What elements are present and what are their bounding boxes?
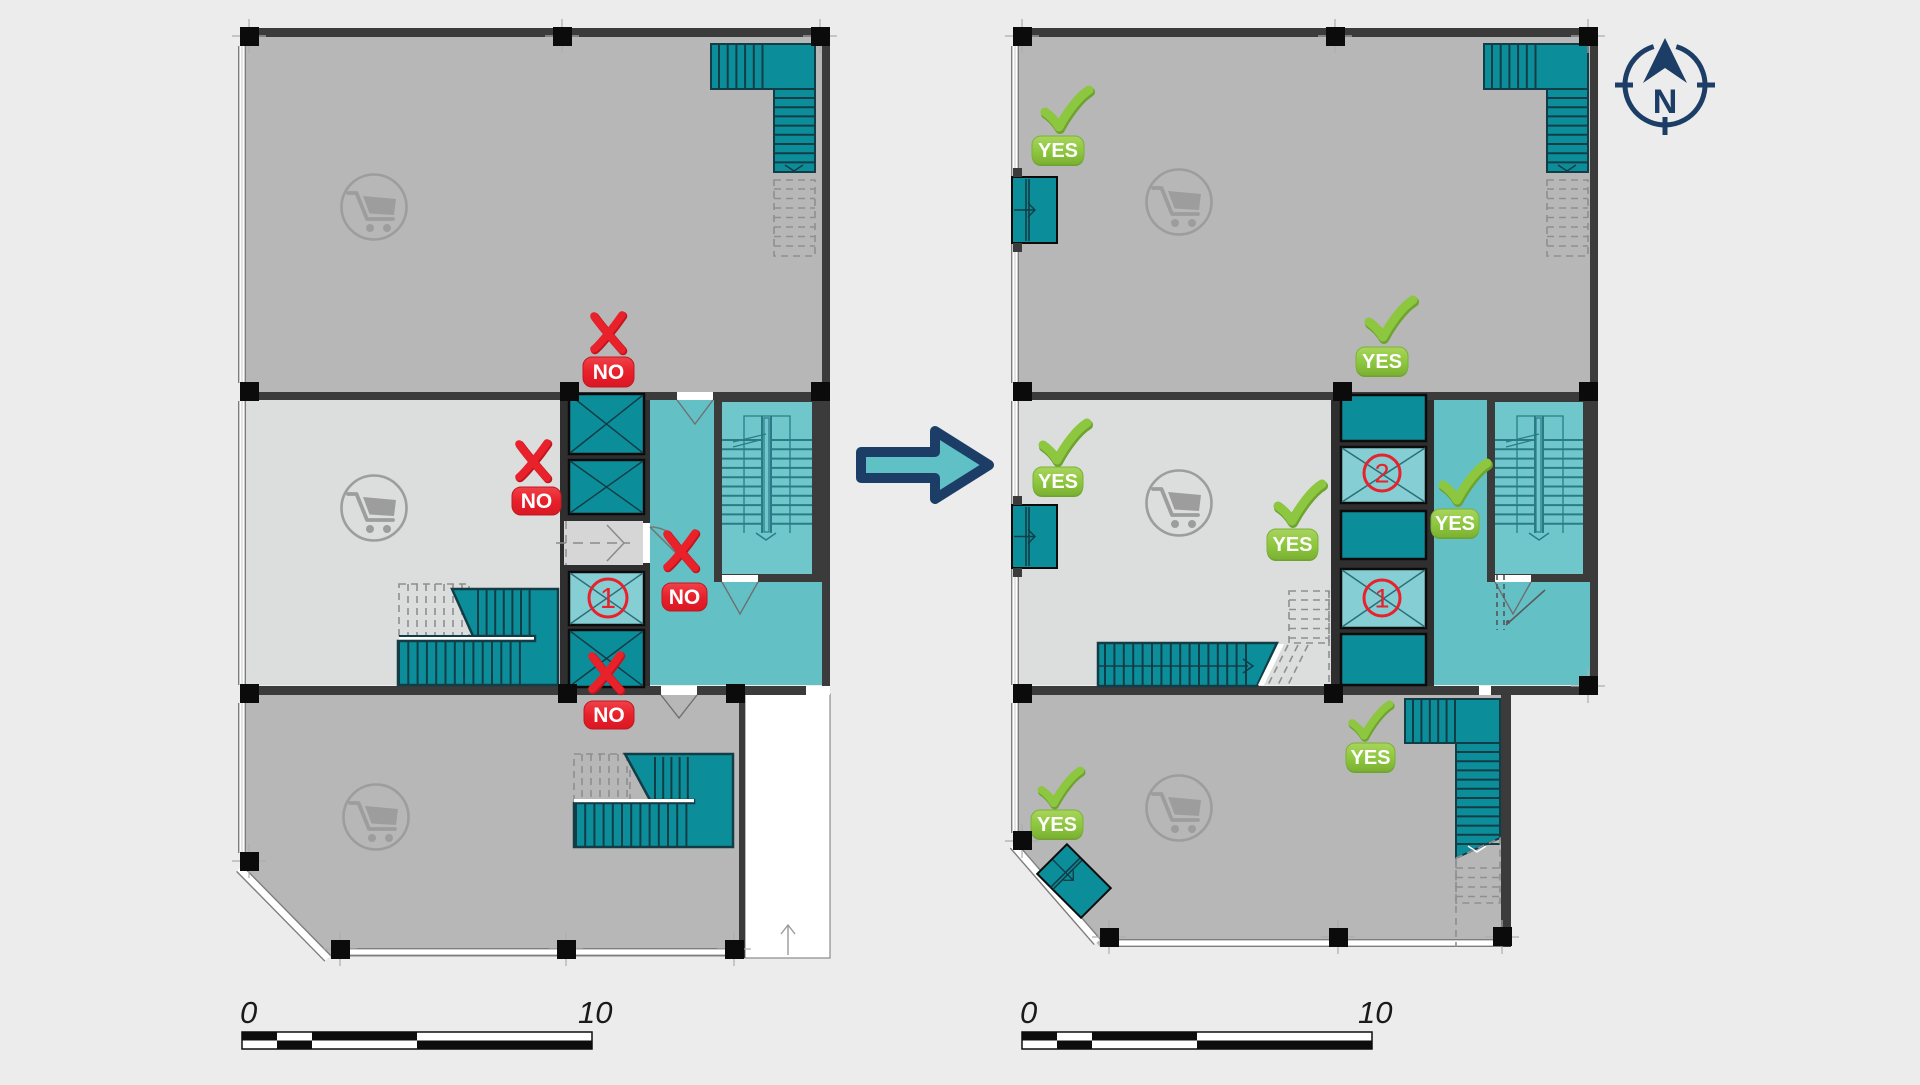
svg-text:1: 1 [1374, 583, 1389, 613]
svg-text:YES: YES [1435, 513, 1475, 535]
svg-text:0: 0 [240, 995, 257, 1030]
svg-text:10: 10 [1358, 995, 1392, 1030]
svg-text:NO: NO [521, 490, 553, 513]
svg-text:YES: YES [1038, 471, 1078, 493]
svg-text:1: 1 [600, 583, 616, 615]
svg-text:YES: YES [1272, 534, 1312, 556]
svg-text:NO: NO [669, 586, 701, 609]
svg-text:YES: YES [1350, 747, 1390, 769]
svg-text:2: 2 [1374, 458, 1389, 488]
svg-text:0: 0 [1020, 995, 1037, 1030]
svg-text:YES: YES [1362, 351, 1402, 373]
svg-text:NO: NO [593, 704, 625, 727]
svg-text:10: 10 [578, 995, 612, 1030]
svg-text:N: N [1653, 83, 1678, 121]
svg-text:YES: YES [1038, 140, 1078, 162]
svg-text:YES: YES [1037, 814, 1077, 836]
svg-text:NO: NO [593, 361, 625, 384]
